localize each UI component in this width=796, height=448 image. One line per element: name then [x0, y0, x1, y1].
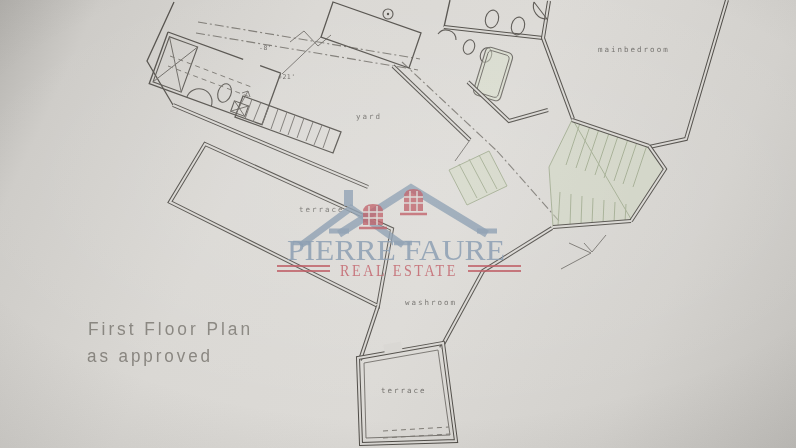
floorplan-photo: -8' +21' mainbedroom yard terrace washro…	[0, 0, 796, 448]
room-label-washroom: washroom	[405, 298, 457, 307]
chimney-icon	[344, 190, 353, 206]
dashdot-line-2	[196, 33, 418, 70]
top-room-walls	[321, 2, 421, 68]
winding-stair-fill	[549, 120, 665, 227]
plan-title-line1: First Floor Plan	[88, 319, 253, 339]
link-wall	[282, 37, 321, 74]
floorplan-drawing: -8' +21' mainbedroom yard terrace washro…	[0, 0, 796, 448]
toilet-icon	[215, 82, 234, 104]
bathroom-2-right-wall	[543, 1, 573, 119]
mainbedroom-right-wall-gap	[649, 0, 727, 147]
bathroom-2-left-wall	[444, 0, 450, 27]
stair-outline	[235, 96, 341, 153]
tagline-right-dashes-icon	[468, 266, 521, 271]
survey-mark-icon	[561, 243, 591, 269]
toilet-icon	[483, 9, 500, 30]
watermark: PIERRE FAURE REAL ESTATE	[277, 188, 521, 280]
corner-sink-icon	[533, 2, 547, 19]
annotation-level-b: +21'	[278, 73, 296, 81]
center-stair-fill	[449, 151, 507, 205]
mainbedroom-wall	[649, 0, 727, 147]
bathroom-2	[438, 0, 573, 119]
center-stair	[449, 151, 507, 205]
dashdot-line-1	[198, 22, 420, 59]
room-label-mainbedroom: mainbedroom	[598, 45, 670, 54]
bidet-icon	[461, 38, 476, 56]
column-dot-icon	[387, 13, 389, 15]
watermark-tagline: REAL ESTATE	[340, 261, 458, 280]
annotation-level-a: -8'	[259, 44, 272, 52]
window-icon	[404, 189, 423, 211]
window-icon	[363, 204, 383, 225]
check-mark-icon	[584, 235, 606, 252]
yard-walls	[393, 66, 548, 161]
plan-title-line2: as approved	[87, 346, 213, 366]
room-label-terrace-lower: terrace	[381, 386, 427, 395]
room-label-terrace-upper: terrace	[299, 205, 345, 214]
corridor-left-wall-gap	[360, 306, 378, 360]
plan-title: First Floor Plan as approved	[87, 319, 253, 366]
yard-wall-a-gap	[393, 66, 470, 140]
bathroom-2-bottom-wall-gap	[444, 27, 543, 38]
dashed-line-1	[170, 56, 254, 88]
top-room	[282, 2, 421, 74]
sink-icon	[438, 30, 456, 40]
yard-wall-c	[455, 140, 470, 161]
main-stair	[235, 91, 341, 153]
mainbedroom-right-wall	[649, 0, 727, 147]
winding-stair	[549, 120, 665, 269]
room-label-yard: yard	[356, 112, 382, 121]
